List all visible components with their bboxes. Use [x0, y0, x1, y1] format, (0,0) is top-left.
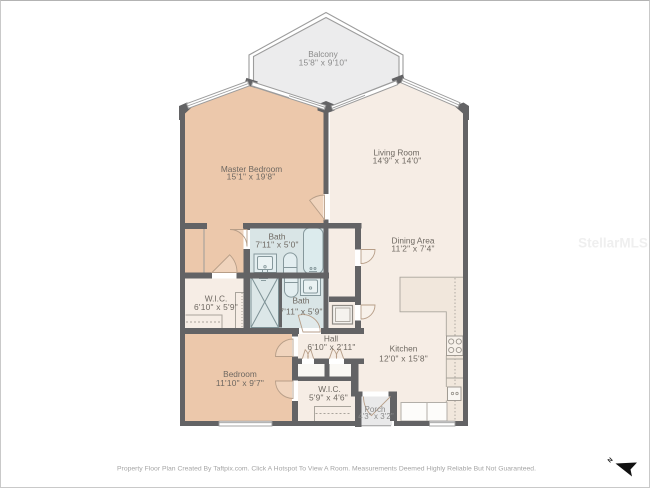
svg-text:4'3" x 3'2": 4'3" x 3'2"	[358, 412, 394, 421]
svg-text:15'8" x 9'10": 15'8" x 9'10"	[299, 58, 348, 68]
svg-text:14'9" x 14'0": 14'9" x 14'0"	[373, 156, 422, 166]
svg-text:11'10" x 9'7": 11'10" x 9'7"	[216, 378, 264, 388]
svg-text:7'11" x 5'9": 7'11" x 5'9"	[279, 307, 322, 317]
svg-text:N: N	[607, 457, 614, 464]
svg-text:5'9" x 4'6": 5'9" x 4'6"	[309, 393, 348, 403]
svg-text:Property Floor Plan Created By: Property Floor Plan Created By Taftpix.c…	[117, 466, 536, 473]
svg-text:11'2" x 7'4": 11'2" x 7'4"	[391, 244, 434, 254]
svg-text:6'10" x 2'11": 6'10" x 2'11"	[307, 342, 355, 352]
svg-text:StellarMLS: StellarMLS	[578, 236, 648, 251]
svg-text:7'11" x 5'0": 7'11" x 5'0"	[255, 240, 298, 250]
svg-text:Bath: Bath	[292, 296, 309, 306]
svg-text:Kitchen: Kitchen	[390, 344, 418, 354]
svg-text:6'10" x 5'9": 6'10" x 5'9"	[194, 302, 238, 312]
svg-text:15'1" x 19'8": 15'1" x 19'8"	[227, 172, 276, 182]
svg-text:12'0" x 15'8": 12'0" x 15'8"	[379, 354, 428, 364]
